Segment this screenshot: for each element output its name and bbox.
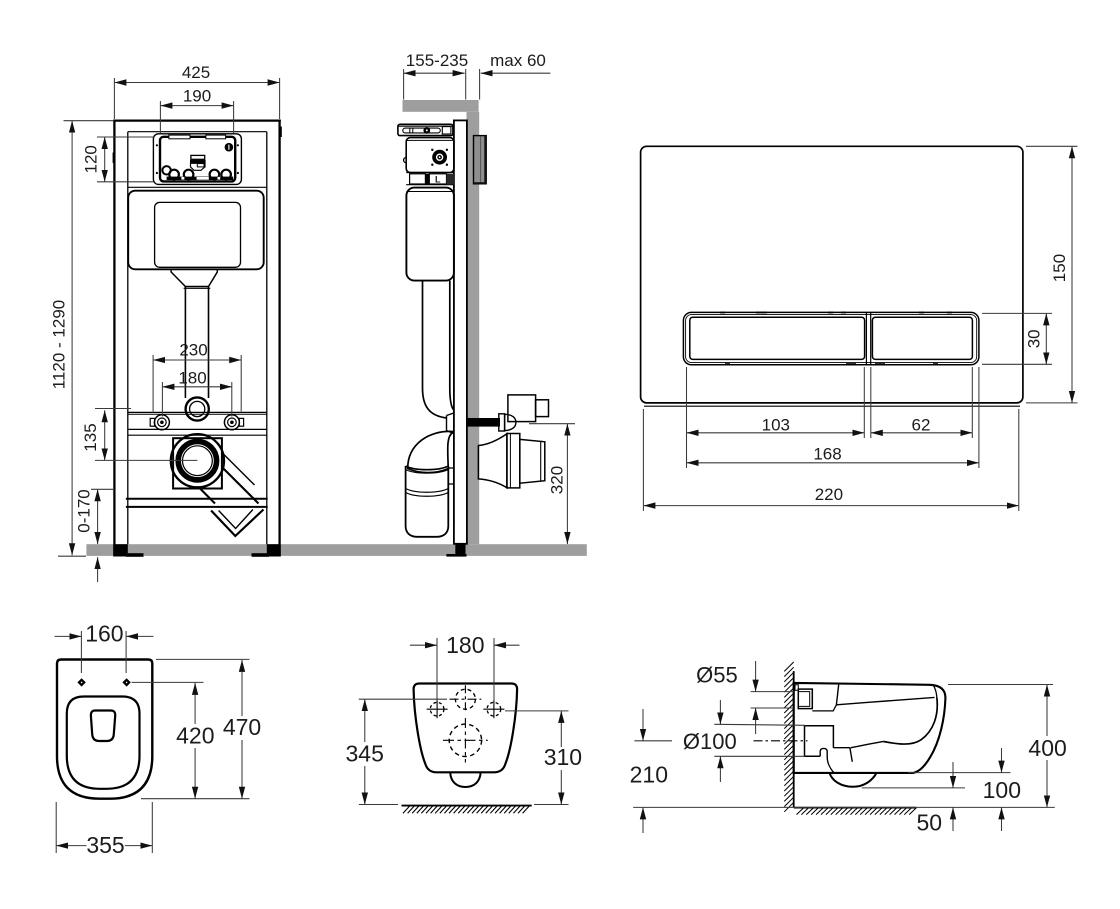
svg-text:355: 355 bbox=[86, 832, 124, 858]
svg-text:425: 425 bbox=[182, 63, 210, 82]
svg-text:100: 100 bbox=[983, 777, 1021, 803]
svg-text:120: 120 bbox=[82, 145, 101, 173]
svg-text:max 60: max 60 bbox=[490, 51, 546, 70]
svg-text:470: 470 bbox=[223, 714, 261, 740]
svg-text:L: L bbox=[435, 175, 441, 185]
svg-text:345: 345 bbox=[346, 740, 384, 766]
svg-text:420: 420 bbox=[176, 722, 214, 748]
svg-text:Ø55: Ø55 bbox=[696, 662, 738, 687]
svg-text:230: 230 bbox=[179, 341, 207, 360]
svg-text:180: 180 bbox=[178, 369, 206, 388]
svg-text:320: 320 bbox=[548, 466, 567, 494]
svg-text:160: 160 bbox=[85, 621, 123, 647]
svg-text:1120 - 1290: 1120 - 1290 bbox=[50, 300, 69, 389]
svg-text:150: 150 bbox=[1050, 254, 1069, 282]
svg-text:103: 103 bbox=[762, 415, 790, 434]
svg-text:155-235: 155-235 bbox=[406, 51, 468, 70]
svg-text:190: 190 bbox=[183, 87, 211, 106]
svg-text:50: 50 bbox=[917, 810, 943, 836]
svg-text:0-170: 0-170 bbox=[75, 489, 94, 532]
svg-text:220: 220 bbox=[815, 485, 843, 504]
svg-text:210: 210 bbox=[630, 761, 668, 787]
svg-text:62: 62 bbox=[912, 415, 931, 434]
svg-text:30: 30 bbox=[1025, 329, 1044, 348]
svg-text:180: 180 bbox=[446, 632, 484, 658]
svg-text:Ø100: Ø100 bbox=[683, 729, 737, 754]
svg-text:135: 135 bbox=[81, 423, 100, 451]
svg-text:400: 400 bbox=[1028, 735, 1066, 761]
svg-text:310: 310 bbox=[544, 744, 582, 770]
svg-text:168: 168 bbox=[813, 444, 841, 463]
